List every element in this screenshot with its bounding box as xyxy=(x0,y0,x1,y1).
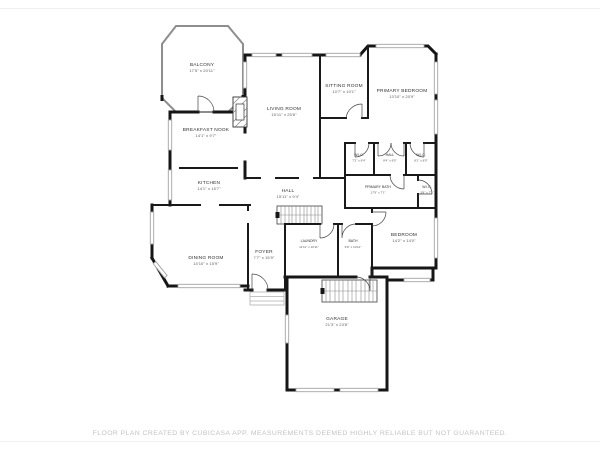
room-label-garage: GARAGE 21'3" x 23'8" xyxy=(325,316,349,327)
room-dims: 17'9" x 7'1" xyxy=(370,191,385,195)
room-dims: 3'8" x 7'1" xyxy=(420,191,434,195)
room-dims: 11'11" x 10'11" xyxy=(299,245,319,249)
room-dims: 14'2" x 14'0" xyxy=(392,238,416,243)
room-label-sitting-room: SITTING ROOM 10'7" x 10'1" xyxy=(325,83,363,94)
door-bath xyxy=(342,224,356,238)
window xyxy=(282,53,312,56)
door-primary-bath xyxy=(390,175,404,189)
room-label-breakfast-nook: BREAKFAST NOOK 14'1" x 9'7" xyxy=(183,127,230,138)
room-label-hall-small: HALL 8'4" x 8'5" xyxy=(383,153,397,163)
bottom-hairline xyxy=(0,441,600,442)
room-dims: 7'7" x 15'9" xyxy=(254,255,275,260)
room-name: LAUNDRY xyxy=(301,239,318,243)
room-dims: 14'10" x 15'9" xyxy=(193,261,219,266)
room-name: BATH xyxy=(348,239,358,243)
room-label-bath: BATH 9'9" x 10'11" xyxy=(345,239,362,249)
room-name: W.I.C. xyxy=(354,153,364,157)
room-label-kitchen: KITCHEN 14'1" x 15'7" xyxy=(197,180,221,191)
room-dims: 8'4" x 8'5" xyxy=(383,159,397,163)
top-hairline xyxy=(0,8,600,9)
window xyxy=(243,62,246,88)
garage-door xyxy=(340,388,378,391)
room-label-wic-left: W.I.C. 7'2" x 8'4" xyxy=(352,153,366,163)
room-name: HALL xyxy=(386,153,395,157)
room-label-wic-small: W.I.C. 3'8" x 7'1" xyxy=(420,185,434,195)
room-label-wic-right: W.I.C. 8'1" x 8'5" xyxy=(414,153,428,163)
room-label-hall-main: HALL 15'11" x 9'4" xyxy=(277,188,300,199)
room-dims: 15'11" x 9'4" xyxy=(277,194,300,199)
window xyxy=(168,170,171,200)
window xyxy=(285,315,288,343)
door-laundry xyxy=(320,224,334,238)
window xyxy=(178,284,240,287)
floor-plan-page: BALCONY 17'5" x 20'11" BREAKFAST NOOK 14… xyxy=(0,0,600,450)
window xyxy=(434,218,437,258)
room-name: W.I.C. xyxy=(416,153,426,157)
room-label-primary-bedroom: PRIMARY BEDROOM 13'10" x 20'9" xyxy=(377,88,428,99)
room-label-primary-bath: PRIMARY BATH 17'9" x 7'1" xyxy=(365,185,391,195)
room-label-balcony: BALCONY 17'5" x 20'11" xyxy=(189,62,215,73)
floor-plan-svg: BALCONY 17'5" x 20'11" BREAKFAST NOOK 14… xyxy=(0,0,600,450)
room-dims: 21'3" x 23'8" xyxy=(325,322,349,327)
door-bedroom xyxy=(372,212,386,226)
room-name: W.I.C. xyxy=(422,185,432,189)
window xyxy=(150,212,153,244)
window xyxy=(326,53,360,56)
window xyxy=(376,44,424,47)
garage-door xyxy=(296,388,334,391)
staircase-garage xyxy=(321,280,378,302)
room-dims: 13'10" x 20'9" xyxy=(389,94,415,99)
room-label-foyer: FOYER 7'7" x 15'9" xyxy=(254,249,275,260)
window xyxy=(434,62,437,94)
room-dims: 9'9" x 10'11" xyxy=(345,245,362,249)
door-front xyxy=(252,274,268,290)
window xyxy=(434,100,437,134)
disclaimer-text: FLOOR PLAN CREATED BY CUBICASA APP. MEAS… xyxy=(93,430,508,437)
room-dims: 8'1" x 8'5" xyxy=(414,159,428,163)
room-name: PRIMARY BATH xyxy=(365,185,391,189)
room-dims: 10'7" x 10'1" xyxy=(332,89,356,94)
room-dims: 14'1" x 15'7" xyxy=(197,186,221,191)
room-dims: 14'1" x 9'7" xyxy=(196,133,217,138)
room-dims: 7'2" x 8'4" xyxy=(352,159,366,163)
staircase-main xyxy=(276,206,323,224)
window xyxy=(404,278,430,281)
fireplace xyxy=(233,97,247,127)
room-dims: 17'5" x 20'11" xyxy=(189,68,215,73)
room-label-dining-room: DINING ROOM 14'10" x 15'9" xyxy=(188,255,223,266)
room-label-bedroom: BEDROOM 14'2" x 14'0" xyxy=(391,232,417,243)
front-steps xyxy=(250,292,284,305)
window xyxy=(168,120,171,150)
room-label-living-room: LIVING ROOM 15'11" x 25'8" xyxy=(267,106,301,117)
door-sitting xyxy=(346,104,362,118)
room-dims: 15'11" x 25'8" xyxy=(271,112,297,117)
window xyxy=(252,53,276,56)
room-label-laundry: LAUNDRY 11'11" x 10'11" xyxy=(299,239,319,249)
